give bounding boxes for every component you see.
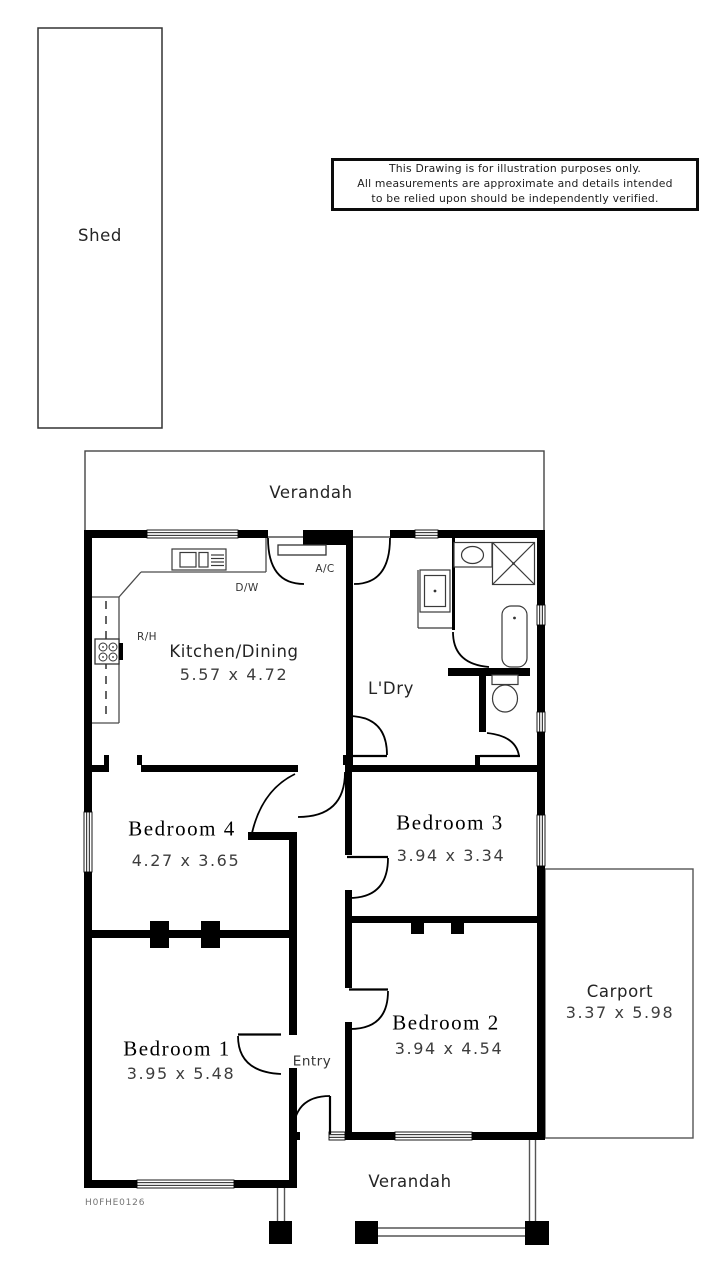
rh-label: R/H — [137, 632, 157, 643]
carport-dimensions: 3.37 x 5.98 — [566, 1005, 675, 1021]
disclaimer-line-3: to be relied upon should be independentl… — [371, 192, 658, 207]
verandah-posts — [269, 1221, 549, 1245]
room-dimensions-bedroom3: 3.94 x 3.34 — [397, 848, 506, 864]
laundry-door-arc — [354, 538, 390, 584]
room-label-laundry: L'Dry — [368, 681, 414, 698]
vanity-basin — [454, 543, 492, 568]
carport-label: Carport — [587, 984, 653, 1001]
laundry-trough — [418, 570, 452, 628]
room-label-bedroom3: Bedroom 3 — [396, 813, 503, 834]
front-door-arc — [293, 1096, 330, 1135]
ac-unit — [278, 545, 326, 555]
disclaimer-line-1: This Drawing is for illustration purpose… — [389, 162, 641, 177]
room-label-entry: Entry — [293, 1055, 331, 1069]
bathroom-door-arc — [453, 632, 489, 667]
shower — [493, 543, 535, 585]
fireplace-bed2 — [411, 923, 464, 934]
rear-verandah-label: Verandah — [269, 485, 352, 502]
room-dimensions-bedroom1: 3.95 x 5.48 — [127, 1066, 236, 1082]
room-dimensions-bedroom2: 3.94 x 4.54 — [395, 1041, 504, 1057]
bedroom1-window — [137, 1180, 234, 1188]
hall-door-arc — [298, 772, 345, 817]
room-label-bedroom1: Bedroom 1 — [123, 1039, 230, 1060]
room-dimensions-bedroom4: 4.27 x 3.65 — [132, 853, 241, 869]
plan-code: H0FHE0126 — [85, 1198, 145, 1208]
bedroom3-door-arc — [349, 858, 388, 898]
cooktop — [95, 639, 123, 664]
floorplan-page: This Drawing is for illustration purpose… — [0, 0, 726, 1276]
bedroom1-door-arc — [238, 1036, 281, 1074]
kitchen-sink — [172, 549, 226, 570]
bedroom2-window — [395, 1132, 472, 1140]
wc-door-arc — [487, 733, 519, 756]
room-label-kitchen-dining: Kitchen/Dining — [169, 644, 298, 661]
wc-window — [537, 712, 545, 732]
front-verandah-label: Verandah — [368, 1174, 451, 1191]
kitchen-window — [147, 530, 238, 538]
bedroom4-door-arc — [252, 774, 295, 833]
bedroom2-door-arc — [350, 991, 388, 1029]
bathtub — [502, 606, 527, 667]
bathroom-window — [537, 605, 545, 625]
ac-label: A/C — [315, 564, 334, 575]
room-label-bedroom4: Bedroom 4 — [128, 819, 235, 840]
entry-sidelight-window — [329, 1132, 345, 1140]
shed-label: Shed — [78, 228, 122, 245]
laundry-window — [415, 530, 438, 538]
laundry-south-door-arc — [348, 716, 387, 755]
bedroom3-window — [537, 815, 545, 866]
disclaimer-box: This Drawing is for illustration purpose… — [331, 158, 699, 211]
room-dimensions-kitchen-dining: 5.57 x 4.72 — [180, 667, 289, 683]
toilet — [492, 675, 518, 712]
room-label-bedroom2: Bedroom 2 — [392, 1013, 499, 1034]
dw-label: D/W — [235, 583, 258, 594]
bedroom4-window — [84, 812, 92, 872]
disclaimer-line-2: All measurements are approximate and det… — [357, 177, 672, 192]
